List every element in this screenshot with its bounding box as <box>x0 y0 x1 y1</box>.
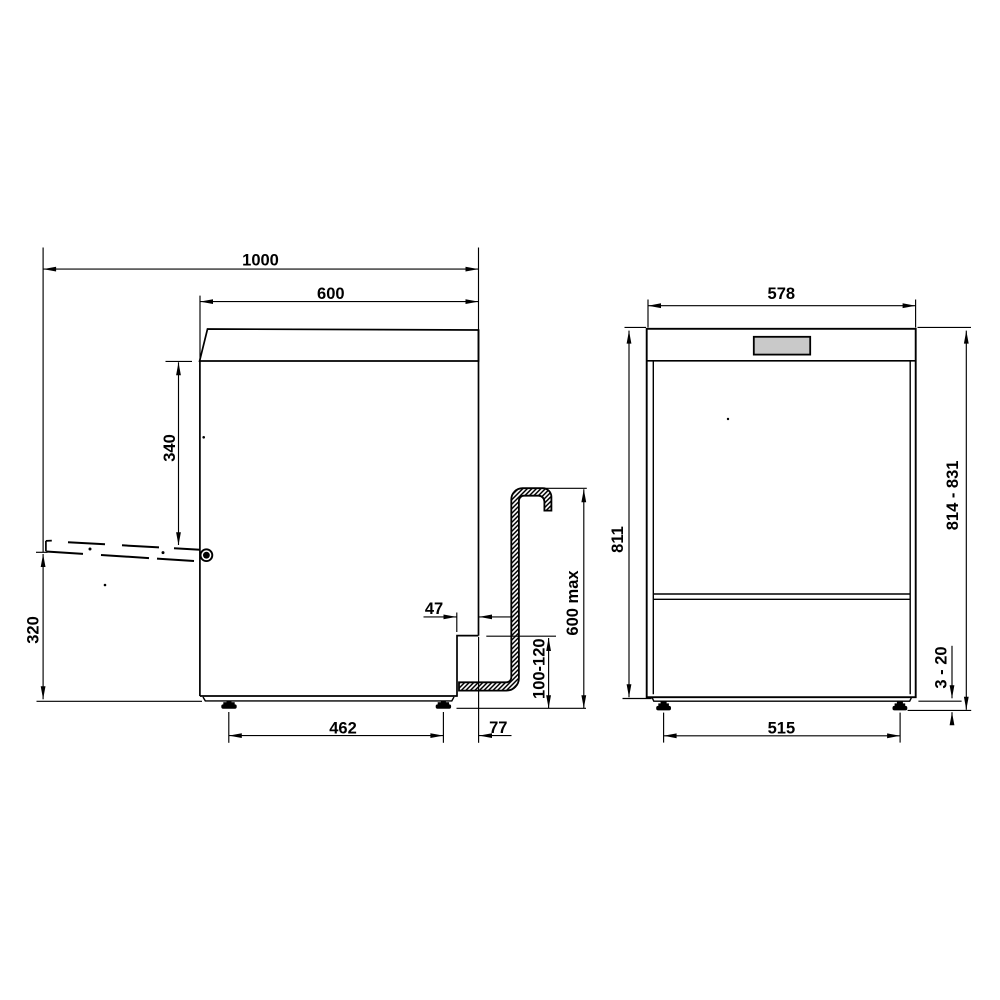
svg-text:100-120: 100-120 <box>530 638 548 699</box>
svg-text:340: 340 <box>161 434 179 462</box>
svg-text:811: 811 <box>609 526 627 553</box>
svg-text:320: 320 <box>25 616 43 644</box>
svg-text:600 max: 600 max <box>564 570 582 636</box>
svg-text:515: 515 <box>768 719 796 737</box>
svg-text:77: 77 <box>489 719 507 737</box>
svg-text:3 - 20: 3 - 20 <box>933 646 951 688</box>
svg-text:47: 47 <box>425 600 443 618</box>
svg-text:1000: 1000 <box>242 252 279 270</box>
svg-text:600: 600 <box>317 285 345 303</box>
svg-text:814 - 831: 814 - 831 <box>944 461 962 531</box>
svg-text:462: 462 <box>329 719 357 737</box>
svg-text:578: 578 <box>768 285 796 303</box>
